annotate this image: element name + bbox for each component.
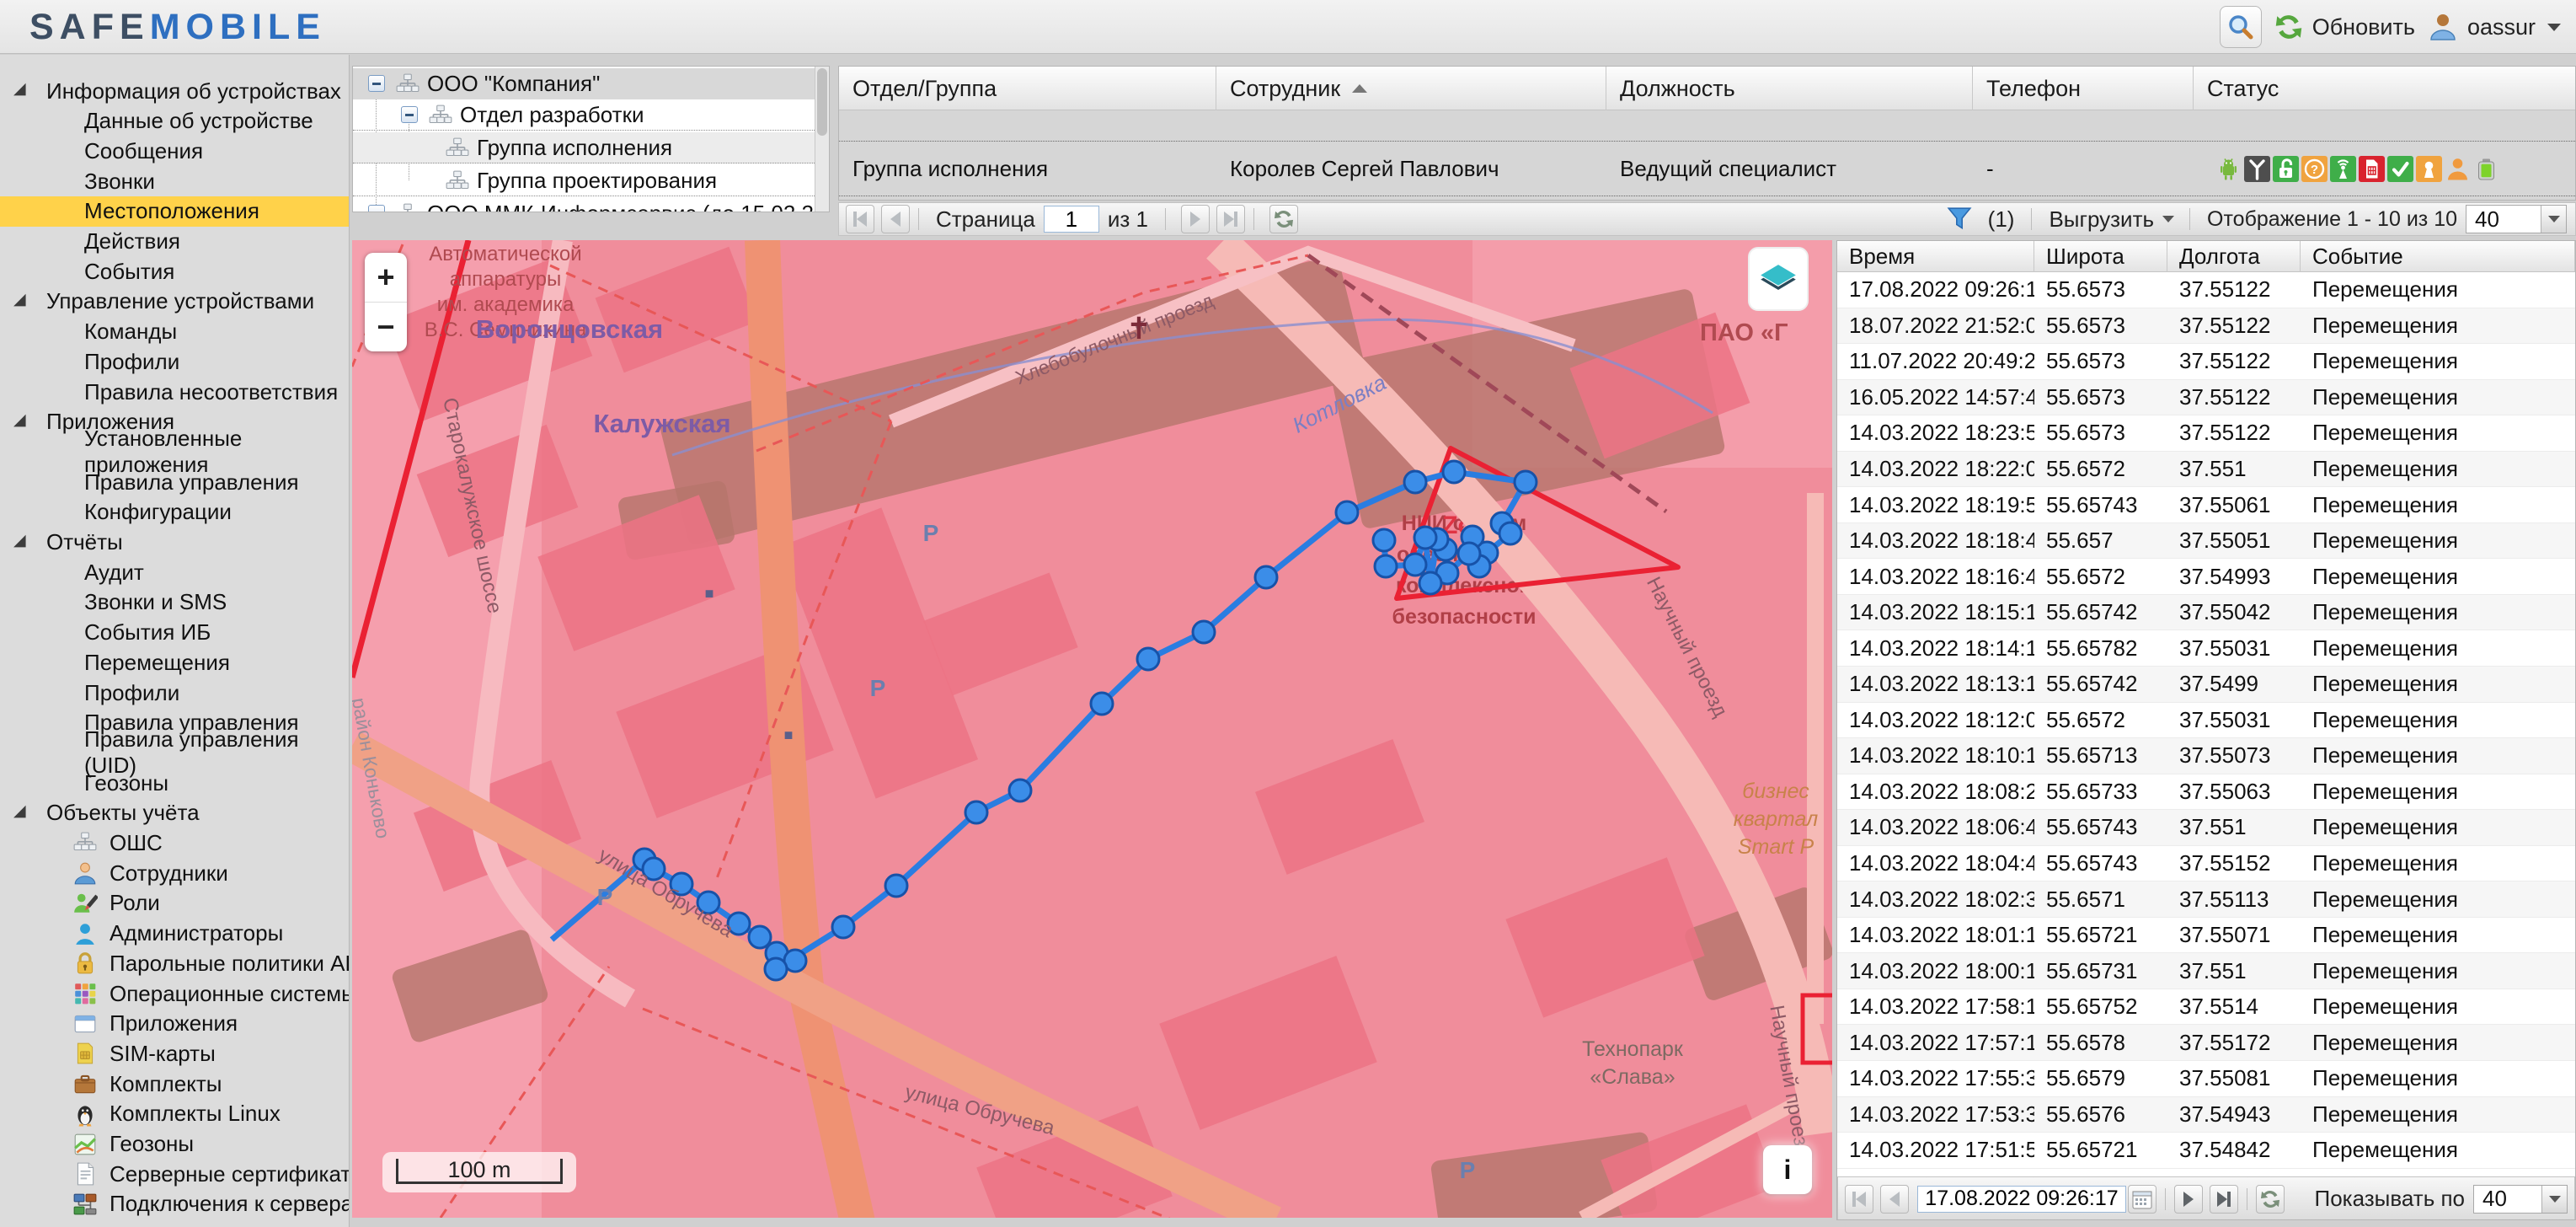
employee-column-header-2[interactable]: Должность	[1606, 67, 1973, 110]
collapse-expander-icon[interactable]	[368, 75, 385, 92]
employee-status-icons: ?	[2194, 156, 2499, 182]
sidebar-item-комплекты-linux[interactable]: Комплекты Linux	[0, 1099, 350, 1129]
filter-count-badge: (1)	[1988, 206, 2015, 233]
sidebar-group-label: Управление устройствами	[46, 288, 314, 314]
sidebar-item-события-иб[interactable]: События ИБ	[0, 618, 350, 648]
sidebar-item-профили[interactable]: Профили	[0, 678, 350, 708]
tree-scrollbar[interactable]	[815, 67, 829, 212]
os-grid-icon	[72, 981, 98, 1006]
employee-row[interactable]: Группа исполнения Королев Сергей Павлови…	[839, 141, 2576, 196]
location-row[interactable]: 14.03.2022 17:57:1555.657837.55172Переме…	[1837, 1025, 2575, 1061]
sidebar-item-действия[interactable]: Действия	[0, 227, 350, 257]
sidebar-item-комплекты[interactable]: Комплекты	[0, 1069, 350, 1099]
sidebar-item-label: Команды	[84, 319, 177, 345]
prev-page-button[interactable]	[881, 205, 910, 233]
org-tree-label: ООО "Компания"	[427, 71, 600, 97]
route-point-marker[interactable]	[1336, 501, 1358, 523]
location-row[interactable]: 18.07.2022 21:52:0755.657337.55122Переме…	[1837, 308, 2575, 345]
logo-part-mobile: MOBILE	[150, 7, 326, 47]
safemobile-logo: SAFEMOBILE	[29, 7, 326, 48]
sidebar-item-геозоны[interactable]: Геозоны	[0, 768, 350, 798]
roles-icon	[72, 891, 98, 916]
sidebar-item-label: Сообщения	[84, 138, 203, 164]
tree-expanded-arrow-icon[interactable]: ◢	[13, 801, 26, 821]
page-label: Страница	[936, 206, 1035, 233]
org-unit-icon	[445, 137, 468, 160]
locations-table-header: ВремяШиротаДолготаСобытие	[1837, 241, 2575, 272]
route-point-marker[interactable]	[1009, 780, 1031, 801]
sidebar-item-аудит[interactable]: Аудит	[0, 557, 350, 587]
location-column-header-1[interactable]: Широта	[2034, 241, 2167, 272]
org-tree-row[interactable]: Отдел разработки	[353, 99, 815, 131]
loc-first-page-button[interactable]	[1845, 1185, 1873, 1214]
org-tree-label: Группа исполнения	[477, 135, 672, 161]
location-row[interactable]: 14.03.2022 18:06:4255.6574337.551Перемещ…	[1837, 810, 2575, 846]
location-row[interactable]: 17.08.2022 09:26:1755.657337.55122Переме…	[1837, 272, 2575, 308]
sidebar-item-label: События	[84, 259, 174, 285]
loc-reload-icon	[2259, 1188, 2281, 1210]
sidebar-item-парольные-политики-арм[interactable]: Парольные политики АРМ	[0, 948, 350, 978]
certificate-icon	[72, 1161, 98, 1187]
collapse-expander-icon[interactable]	[368, 205, 385, 212]
user-menu[interactable]: oassur	[2427, 11, 2561, 43]
sidebar-item-геозоны[interactable]: Геозоны	[0, 1129, 350, 1160]
loc-page-size-caret-icon	[2549, 1196, 2561, 1203]
route-point-marker[interactable]	[1193, 621, 1215, 643]
route-point-marker[interactable]	[749, 926, 771, 948]
route-point-marker[interactable]	[1458, 543, 1480, 565]
org-tree-label: Группа проектирования	[477, 168, 717, 194]
location-row[interactable]: 14.03.2022 17:51:5555.6572137.54842Перем…	[1837, 1133, 2575, 1169]
last-page-button[interactable]	[1216, 205, 1245, 233]
route-point-marker[interactable]	[728, 913, 750, 935]
user-menu-caret-icon	[2547, 24, 2561, 31]
employee-column-header-4[interactable]: Статус	[2194, 67, 2576, 110]
location-row[interactable]: 14.03.2022 18:15:1055.6574237.55042Перем…	[1837, 595, 2575, 631]
sidebar-item-приложения[interactable]: Приложения	[0, 1009, 350, 1039]
road-khlebobulochny	[891, 253, 1574, 421]
prev-page-icon	[890, 212, 901, 227]
last-page-icon	[1234, 212, 1237, 227]
sidebar-item-label: Данные об устройстве	[84, 108, 313, 134]
org-tree-panel: ООО "Компания"Отдел разработкиГруппа исп…	[352, 66, 830, 212]
employee-name-cell: Королев Сергей Павлович	[1216, 156, 1606, 182]
page-size-select[interactable]: 40	[2466, 205, 2567, 233]
sidebar-item-операционные-системы[interactable]: Операционные системы	[0, 978, 350, 1009]
sidebar-group-label: Отчёты	[46, 529, 123, 555]
sidebar-item-правила-несоответствия[interactable]: Правила несоответствия	[0, 377, 350, 407]
employee-position-cell: Ведущий специалист	[1606, 156, 1973, 182]
location-row[interactable]: 14.03.2022 18:04:4155.6574337.55152Перем…	[1837, 846, 2575, 882]
refresh-button[interactable]: Обновить	[2274, 12, 2415, 42]
location-row[interactable]: 14.03.2022 18:10:1555.6571337.55073Перем…	[1837, 738, 2575, 774]
sidebar-item-label: SIM-карты	[110, 1041, 216, 1067]
sidebar-item-данные-об-устройстве[interactable]: Данные об устройстве	[0, 106, 350, 137]
navigation-sidebar: ◢Информация об устройствахДанные об устр…	[0, 55, 350, 1227]
sidebar-item-звонки-и-sms[interactable]: Звонки и SMS	[0, 587, 350, 618]
sidebar-item-sim-карты[interactable]: SIM-карты	[0, 1038, 350, 1069]
page-number-input[interactable]	[1044, 206, 1099, 233]
employee-column-header-0[interactable]: Отдел/Группа	[839, 67, 1216, 110]
next-page-icon	[1190, 212, 1200, 227]
sidebar-item-команды[interactable]: Команды	[0, 317, 350, 347]
sidebar-item-label: Администраторы	[110, 920, 283, 946]
map-vector-layer	[352, 240, 1832, 1218]
loc-last-page-button[interactable]	[2210, 1185, 2238, 1214]
route-point-marker[interactable]	[1499, 522, 1521, 544]
status-keyhole-icon	[2416, 156, 2442, 182]
location-row[interactable]: 14.03.2022 18:00:1355.6573137.551Перемещ…	[1837, 953, 2575, 989]
loc-page-size-select[interactable]: 40	[2473, 1185, 2568, 1214]
employee-column-header-1[interactable]: Сотрудник	[1216, 67, 1606, 110]
route-layer	[552, 461, 1537, 980]
route-point-marker[interactable]	[1404, 471, 1426, 493]
sidebar-item-правила-управления-uid-[interactable]: Правила управления (UID)	[0, 737, 350, 768]
map-canvas[interactable]: НИИ системобеспечениякомплекснойбезопасн…	[352, 240, 1832, 1218]
calendar-icon	[2131, 1188, 2153, 1210]
sidebar-item-профили[interactable]: Профили	[0, 346, 350, 377]
sidebar-item-label: Звонки	[84, 169, 155, 195]
employee-column-header-3[interactable]: Телефон	[1973, 67, 2194, 110]
map-layers-button[interactable]	[1748, 247, 1809, 311]
location-row[interactable]: 14.03.2022 17:58:1255.6575237.5514Переме…	[1837, 989, 2575, 1026]
location-row[interactable]: 14.03.2022 18:16:4555.657237.54993Переме…	[1837, 559, 2575, 595]
zoom-in-button[interactable]: +	[365, 253, 407, 302]
sidebar-item-ошс[interactable]: ОШС	[0, 828, 350, 859]
location-row[interactable]: 14.03.2022 18:13:1455.6574237.5499Переме…	[1837, 667, 2575, 703]
sidebar-item-label: Действия	[84, 228, 180, 255]
org-tree-label: ООО ММК-Информсервис (до 15.02.24)	[427, 201, 830, 212]
sim-icon	[72, 1041, 98, 1066]
reload-table-button[interactable]	[1269, 205, 1298, 233]
sidebar-item-администраторы[interactable]: Администраторы	[0, 919, 350, 949]
sidebar-group-label: Информация об устройствах	[46, 78, 341, 104]
kit-icon	[72, 1071, 98, 1096]
loc-prev-page-icon	[1889, 1192, 1900, 1207]
route-point-marker[interactable]	[643, 858, 665, 880]
svg-text:?: ?	[2311, 163, 2318, 177]
location-row[interactable]: 16.05.2022 14:57:4755.657337.55122Переме…	[1837, 380, 2575, 416]
sidebar-item-роли[interactable]: Роли	[0, 888, 350, 919]
route-point-marker[interactable]	[1414, 527, 1436, 549]
sidebar-item-label: Правила несоответствия	[84, 379, 338, 405]
sidebar-item-label: Правила управления	[84, 469, 299, 496]
location-column-header-0[interactable]: Время	[1837, 241, 2034, 272]
tree-expanded-arrow-icon[interactable]: ◢	[13, 290, 26, 309]
status-question-icon: ?	[2301, 156, 2327, 182]
admin-icon	[72, 921, 98, 946]
sidebar-item-label: Профили	[84, 349, 179, 375]
reload-icon	[1273, 208, 1295, 230]
sidebar-item-установленные-приложения[interactable]: Установленные приложения	[0, 437, 350, 467]
loc-next-page-button[interactable]	[2174, 1185, 2203, 1214]
org-unit-icon	[395, 202, 419, 212]
route-point-marker[interactable]	[1255, 566, 1277, 588]
status-battery-icon	[2473, 156, 2499, 182]
route-point-marker[interactable]	[1091, 693, 1113, 715]
date-filter-input[interactable]	[1917, 1186, 2126, 1213]
status-check-icon	[2387, 156, 2413, 182]
route-point-marker[interactable]	[965, 801, 987, 823]
tree-expanded-arrow-icon[interactable]: ◢	[13, 531, 26, 550]
export-button[interactable]: Выгрузить	[2049, 206, 2154, 233]
tree-expanded-arrow-icon[interactable]: ◢	[13, 79, 26, 99]
layers-icon	[1756, 257, 1800, 301]
employee-table-header: Отдел/ГруппаСотрудникДолжностьТелефонСта…	[839, 67, 2576, 110]
sidebar-item-серверные-сертификаты[interactable]: Серверные сертификаты	[0, 1159, 350, 1189]
map-scale-bar: 100 m	[382, 1152, 576, 1192]
sidebar-item-сообщения[interactable]: Сообщения	[0, 136, 350, 166]
scale-label: 100 m	[382, 1157, 576, 1183]
employee-dept-cell: Группа исполнения	[839, 156, 1216, 182]
sidebar-item-объекты-учёта[interactable]: ◢Объекты учёта	[0, 798, 350, 828]
location-row[interactable]: 14.03.2022 17:55:3055.657937.55081Переме…	[1837, 1061, 2575, 1097]
search-button[interactable]	[2220, 6, 2262, 48]
location-row[interactable]: 14.03.2022 18:14:1355.6578237.55031Перем…	[1837, 630, 2575, 667]
status-person-orange-icon	[2445, 156, 2471, 182]
sidebar-item-события[interactable]: События	[0, 256, 350, 287]
status-antenna-icon	[2244, 156, 2270, 182]
sidebar-item-информация-об-устройствах[interactable]: ◢Информация об устройствах	[0, 76, 350, 106]
location-row[interactable]: 14.03.2022 18:02:3255.657137.55113Переме…	[1837, 881, 2575, 918]
location-row[interactable]: 14.03.2022 18:19:5755.6574337.55061Перем…	[1837, 487, 2575, 523]
status-unlock-icon	[2273, 156, 2299, 182]
location-row[interactable]: 14.03.2022 18:23:5255.657337.55122Переме…	[1837, 415, 2575, 452]
map-zoom-controls: + −	[365, 253, 407, 351]
loc-last-page-icon	[2227, 1192, 2231, 1207]
sidebar-item-label: Аудит	[84, 560, 144, 586]
employee-table-panel: Отдел/ГруппаСотрудникДолжностьТелефонСта…	[838, 66, 2576, 201]
sidebar-item-label: Геозоны	[84, 770, 168, 796]
route-point-marker[interactable]	[1404, 554, 1426, 576]
location-row[interactable]: 11.07.2022 20:49:2055.657337.55122Переме…	[1837, 344, 2575, 380]
route-point-marker[interactable]	[832, 916, 854, 938]
sidebar-item-label: События ИБ	[84, 619, 211, 646]
sidebar-item-label: Геозоны	[110, 1131, 194, 1157]
date-picker-button[interactable]	[2128, 1185, 2156, 1214]
locations-panel: ВремяШиротаДолготаСобытие 17.08.2022 09:…	[1836, 240, 2576, 1220]
loc-prev-page-button[interactable]	[1880, 1185, 1909, 1214]
logo-part-safe: SAFE	[29, 7, 150, 47]
org-tree-row[interactable]: ООО "Компания"	[353, 68, 815, 99]
next-page-button[interactable]	[1181, 205, 1210, 233]
loc-reload-button[interactable]	[2256, 1185, 2285, 1214]
sidebar-item-управление-устройствами[interactable]: ◢Управление устройствами	[0, 287, 350, 317]
sidebar-item-label: Местоположения	[84, 198, 259, 224]
filter-icon[interactable]	[1946, 206, 1973, 233]
sort-ascending-icon	[1352, 84, 1367, 93]
search-icon	[2226, 13, 2255, 41]
sidebar-item-label: Профили	[84, 680, 179, 706]
sidebar-item-перемещения[interactable]: Перемещения	[0, 647, 350, 678]
sidebar-item-label: Серверные сертификаты	[110, 1161, 350, 1187]
route-point-marker[interactable]	[1137, 648, 1159, 670]
safemobile-app: SAFEMOBILE Обновить oassur	[0, 0, 2576, 1227]
location-column-header-3[interactable]: Событие	[2301, 241, 2575, 272]
road-nauchny-proezd	[1220, 244, 1822, 1133]
location-row[interactable]: 14.03.2022 17:50:5855.6568837.54743Перем…	[1837, 1169, 2575, 1176]
sidebar-item-звонки[interactable]: Звонки	[0, 166, 350, 196]
route-point-marker[interactable]	[1515, 471, 1537, 493]
road-orange-avenue	[762, 240, 858, 1218]
org-unit-icon	[445, 169, 468, 193]
sidebar-item-label: Приложения	[110, 1010, 238, 1037]
map-info-button[interactable]: i	[1763, 1145, 1812, 1194]
route-point-marker[interactable]	[1443, 461, 1465, 483]
lock-icon	[72, 951, 98, 976]
sidebar-item-правила-управления[interactable]: Правила управления	[0, 467, 350, 497]
employee-paging-toolbar: Страница из 1 (1) Выгрузить Отображение …	[838, 202, 2576, 236]
page-size-caret-icon	[2548, 216, 2560, 222]
org-tree-label: Отдел разработки	[460, 102, 644, 128]
export-caret-icon	[2162, 216, 2174, 222]
sidebar-item-подключения-к-серверам[interactable]: Подключения к серверам	[0, 1189, 350, 1219]
sidebar-item-label: Парольные политики АРМ	[110, 951, 350, 977]
location-row[interactable]: 14.03.2022 18:18:4855.65737.55051Перемещ…	[1837, 523, 2575, 560]
user-icon	[2427, 11, 2459, 43]
location-row[interactable]: 14.03.2022 18:01:1055.6572137.55071Перем…	[1837, 918, 2575, 954]
route-point-marker[interactable]	[885, 875, 907, 897]
sidebar-item-конфигурации[interactable]: Конфигурации	[0, 497, 350, 528]
status-signal-icon	[2330, 156, 2356, 182]
sidebar-item-сотрудники[interactable]: Сотрудники	[0, 858, 350, 888]
sidebar-item-label: Операционные системы	[110, 981, 350, 1007]
road-obrucheva	[352, 746, 1275, 1218]
route-point-marker[interactable]	[697, 892, 719, 914]
org-tree-row[interactable]: ООО ММК-Информсервис (до 15.02.24)	[353, 198, 815, 212]
location-column-header-2[interactable]: Долгота	[2167, 241, 2301, 272]
tree-expanded-arrow-icon[interactable]: ◢	[13, 410, 26, 430]
sidebar-item-label: Конфигурации	[84, 499, 232, 525]
display-range-label: Отображение 1 - 10 из 10	[2207, 207, 2457, 232]
sidebar-item-label: Перемещения	[84, 650, 230, 676]
location-row[interactable]: 14.03.2022 17:53:3955.657637.54943Переме…	[1837, 1097, 2575, 1133]
sidebar-item-label: Звонки и SMS	[84, 589, 227, 615]
zoom-out-button[interactable]: −	[365, 303, 407, 351]
route-point-marker[interactable]	[1375, 555, 1397, 577]
top-header-bar: SAFEMOBILE Обновить oassur	[0, 0, 2576, 54]
loc-first-page-icon	[1856, 1192, 1866, 1207]
route-point-marker[interactable]	[765, 958, 787, 980]
server-connections-icon	[72, 1192, 98, 1217]
sidebar-item-label: Роли	[110, 890, 160, 916]
refresh-icon	[2274, 12, 2304, 42]
geozone-icon	[72, 1132, 98, 1157]
employee-phone-cell: -	[1973, 156, 2194, 182]
sidebar-item-label: Комплекты	[110, 1071, 222, 1097]
employee-icon	[72, 860, 98, 886]
org-tree-row[interactable]: Группа исполнения	[353, 132, 815, 163]
route-point-marker[interactable]	[1419, 572, 1441, 594]
refresh-label: Обновить	[2312, 14, 2415, 40]
locations-table-body: 17.08.2022 09:26:1755.657337.55122Переме…	[1837, 272, 2575, 1176]
user-name: oassur	[2467, 14, 2536, 40]
org-chart-icon	[72, 831, 98, 856]
sidebar-item-label: Сотрудники	[110, 860, 228, 887]
collapse-expander-icon[interactable]	[401, 106, 418, 123]
location-row-partial: 14.03.2022 17:50:5855.6568837.54743Перем…	[1837, 1169, 2575, 1176]
sidebar-group-label: Объекты учёта	[46, 800, 200, 826]
sidebar-item-label: ОШС	[110, 830, 163, 856]
linux-icon	[72, 1101, 98, 1127]
sidebar-item-местоположения[interactable]: Местоположения	[0, 196, 350, 227]
first-page-button[interactable]	[846, 205, 874, 233]
status-sim-red-icon	[2359, 156, 2385, 182]
locations-paging-toolbar: Показывать по 40	[1837, 1176, 2575, 1220]
org-tree-row[interactable]: Группа проектирования	[353, 165, 815, 196]
sidebar-item-отчёты[interactable]: ◢Отчёты	[0, 528, 350, 558]
sidebar-item-label: Подключения к серверам	[110, 1191, 350, 1217]
window-icon	[72, 1011, 98, 1037]
org-unit-icon	[395, 72, 419, 96]
location-row[interactable]: 14.03.2022 18:12:0155.657237.55031Переме…	[1837, 703, 2575, 739]
show-per-page-label: Показывать по	[2315, 1186, 2466, 1212]
location-row[interactable]: 14.03.2022 18:22:0255.657237.551Перемеще…	[1837, 452, 2575, 488]
status-android-icon	[2215, 156, 2242, 182]
page-of-label: из 1	[1108, 206, 1148, 233]
loc-next-page-icon	[2183, 1192, 2194, 1207]
route-point-marker[interactable]	[1373, 529, 1395, 551]
location-row[interactable]: 14.03.2022 18:08:2855.6573337.55063Перем…	[1837, 774, 2575, 811]
route-point-marker[interactable]	[671, 873, 692, 895]
org-unit-icon	[428, 104, 452, 127]
sidebar-item-label: Комплекты Linux	[110, 1101, 281, 1127]
